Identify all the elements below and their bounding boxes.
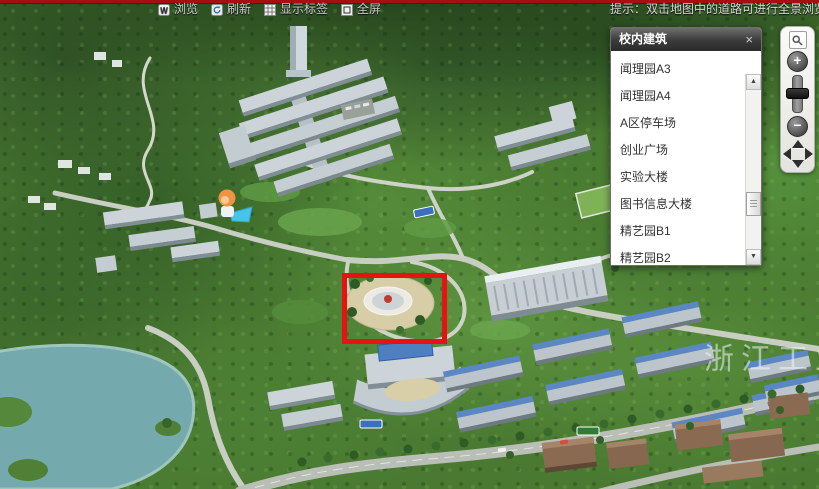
building-list-item[interactable]: 闻理园A3 (620, 56, 761, 83)
tip-text: 提示：双击地图中的道路可进行全景浏览 (610, 3, 819, 16)
scroll-down-icon[interactable]: ▼ (746, 249, 761, 265)
show-labels-button-label: 显示标签 (280, 3, 328, 16)
building-list-item[interactable]: 闻理园A4 (620, 83, 761, 110)
search-icon[interactable] (789, 31, 807, 49)
pan-right-icon[interactable] (805, 148, 813, 160)
show-labels-button[interactable]: 显示标签 (264, 3, 328, 16)
buildings-panel: 校内建筑 × 闻理园A3 闻理园A4 A区停车场 创业广场 实验大楼 图书信息大… (610, 27, 762, 266)
refresh-button-label: 刷新 (227, 3, 251, 16)
building-cluster-left (89, 197, 223, 273)
toolbar: W 浏览 刷新 显示标签 全屏 (158, 3, 381, 16)
building-cluster-top (211, 54, 413, 208)
svg-text:W: W (160, 6, 168, 15)
show-labels-icon (264, 4, 276, 16)
zoom-in-button[interactable]: + (787, 51, 808, 72)
zoom-slider-thumb[interactable] (786, 88, 809, 99)
scrollbar-thumb[interactable] (746, 192, 761, 216)
gate-tower (286, 26, 311, 77)
watermark: 浙江工业 (704, 334, 819, 378)
refresh-icon (211, 4, 223, 16)
browse-button-label: 浏览 (174, 3, 198, 16)
building-cluster-topright (491, 99, 591, 173)
building-list-item[interactable]: A区停车场 (620, 110, 761, 137)
dorm-row-1 (440, 301, 706, 392)
annotation-rectangle (342, 273, 447, 344)
building-list-item[interactable]: 创业广场 (620, 137, 761, 164)
zoom-slider[interactable] (792, 75, 803, 113)
close-icon[interactable]: × (745, 28, 753, 51)
buildings-panel-title: 校内建筑 (619, 28, 667, 51)
buildings-list: 闻理园A3 闻理园A4 A区停车场 创业广场 实验大楼 图书信息大楼 精艺园B1… (611, 51, 761, 265)
buildings-panel-body: 闻理园A3 闻理园A4 A区停车场 创业广场 实验大楼 图书信息大楼 精艺园B1… (611, 51, 761, 265)
small-houses (28, 52, 122, 210)
fullscreen-icon (341, 4, 353, 16)
pan-left-icon[interactable] (783, 148, 791, 160)
pan-up-icon[interactable] (792, 140, 804, 148)
panel-scrollbar[interactable]: ▲ ▼ (745, 74, 761, 265)
building-list-item[interactable]: 图书信息大楼 (620, 191, 761, 218)
browse-button[interactable]: W 浏览 (158, 3, 198, 16)
pan-down-icon[interactable] (792, 160, 804, 168)
building-list-item[interactable]: 实验大楼 (620, 164, 761, 191)
building-list-item[interactable]: 精艺园B1 (620, 218, 761, 245)
building-cluster-bottomleft (267, 380, 343, 433)
lake (0, 345, 194, 489)
building-list-item[interactable]: 精艺园B2 (620, 245, 761, 265)
scroll-up-icon[interactable]: ▲ (746, 74, 761, 90)
fullscreen-button[interactable]: 全屏 (341, 3, 381, 16)
fullscreen-button-label: 全屏 (357, 3, 381, 16)
hand-browse-icon: W (158, 4, 170, 16)
refresh-button[interactable]: 刷新 (211, 3, 251, 16)
zoom-out-button[interactable]: − (787, 116, 808, 137)
buildings-panel-header[interactable]: 校内建筑 × (611, 28, 761, 51)
pan-control[interactable] (783, 140, 813, 168)
map-viewport[interactable]: 浙江工业 W 浏览 刷新 显示标签 全屏 提示：双击地图 (0, 0, 819, 489)
zoom-control: + − (780, 26, 815, 173)
